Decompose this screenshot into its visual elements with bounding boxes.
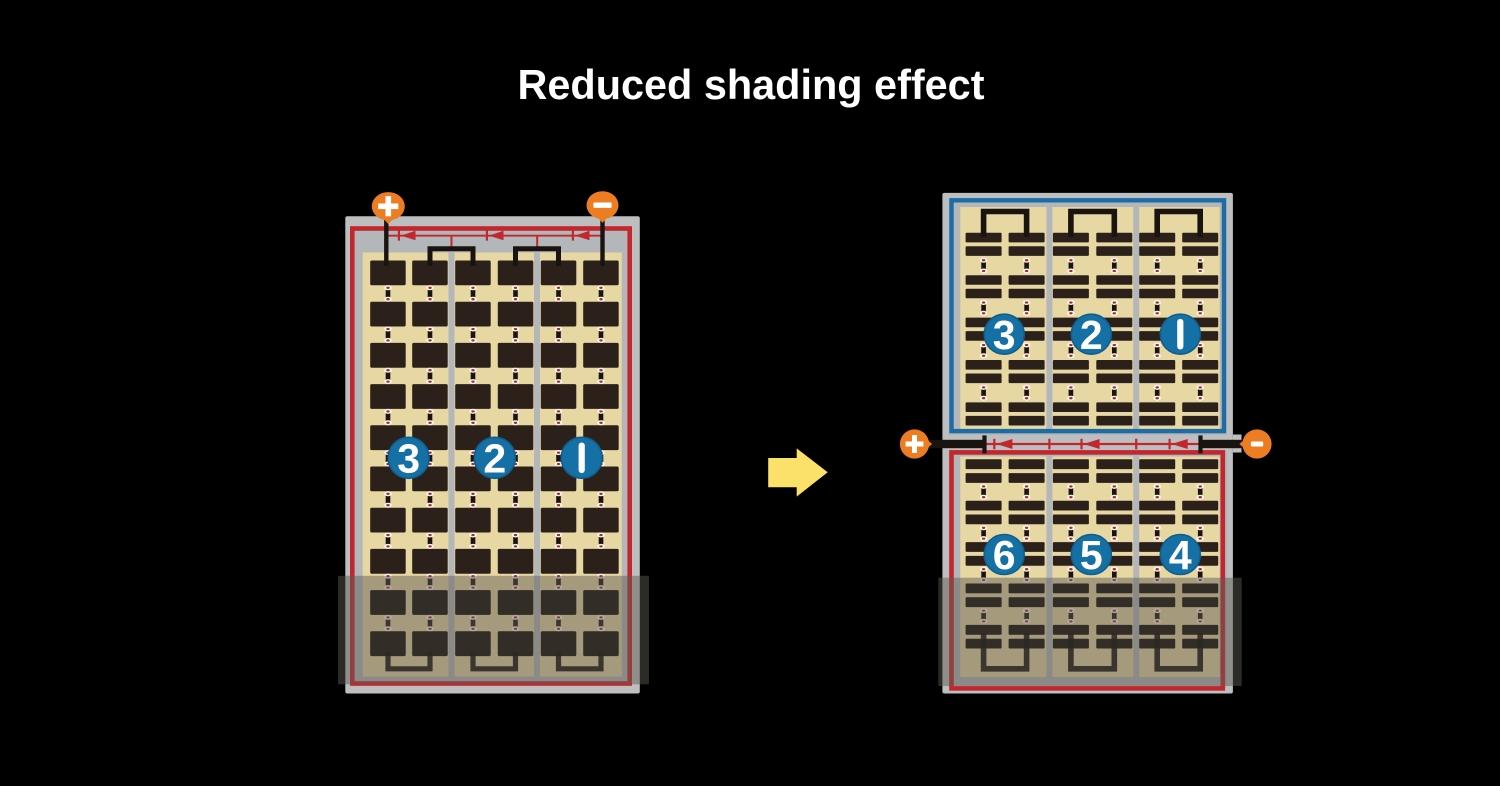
svg-text:2: 2 (483, 435, 506, 481)
svg-text:3: 3 (397, 435, 420, 481)
svg-text:4: 4 (1169, 532, 1192, 578)
svg-text:5: 5 (1080, 532, 1103, 578)
svg-text:2: 2 (1080, 312, 1103, 358)
svg-text:3: 3 (993, 312, 1016, 358)
svg-text:6: 6 (993, 532, 1016, 578)
svg-text:Reduced shading effect: Reduced shading effect (518, 61, 985, 108)
